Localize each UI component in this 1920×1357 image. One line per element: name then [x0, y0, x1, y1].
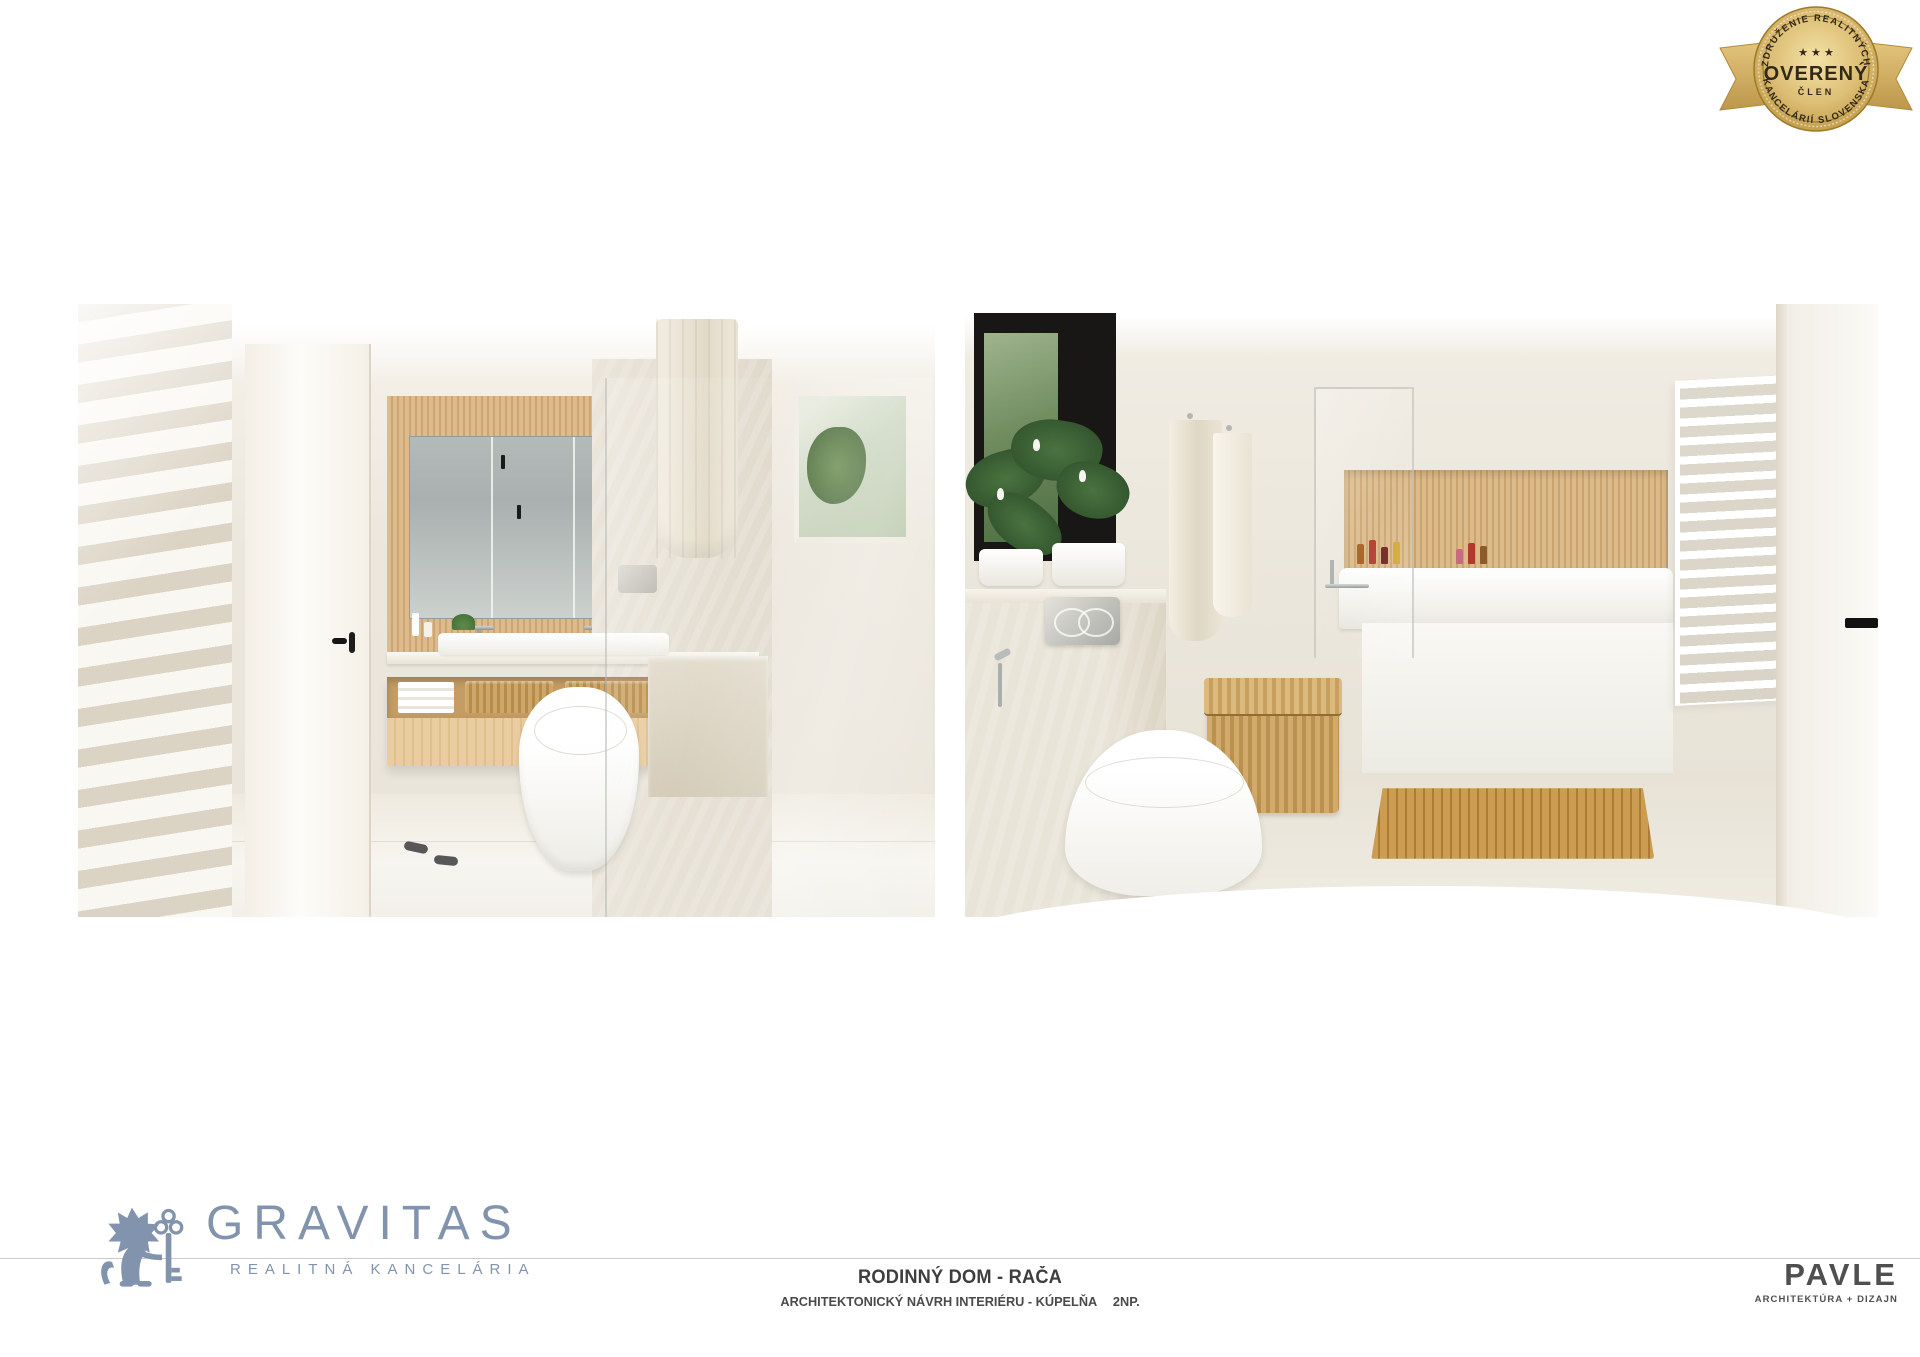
pavle-tagline: ARCHITEKTÚRA + DIZAJN: [1755, 1294, 1898, 1305]
soap-bottle: [424, 622, 432, 637]
white-door: [245, 344, 371, 917]
chrome-bidet-sprayer: [998, 663, 1002, 707]
peace-lily-flower: [997, 488, 1004, 500]
badge-stars: ★ ★ ★: [1798, 47, 1834, 59]
verified-member-badge: ZDRUŽENIE REALITNÝCH ★ ★ ★ OVERENÝ ČLEN …: [1714, 2, 1918, 136]
lion-foreleg: [140, 1251, 162, 1260]
soap-bottle: [412, 613, 419, 636]
mirror-seam: [491, 437, 493, 618]
counter-plant: [452, 614, 475, 630]
towel-radiator-striped-wall: [78, 304, 232, 917]
gravitas-lion-key-icon: [94, 1202, 198, 1296]
flush-button: [1078, 608, 1113, 637]
gravitas-wordmark: GRAVITAS: [206, 1199, 522, 1249]
footer-divider-line: [0, 1258, 1920, 1259]
key-tooth: [171, 1276, 181, 1281]
mirror-seam: [573, 437, 575, 618]
door-handle-rose: [349, 632, 355, 653]
door-handle: [332, 638, 347, 644]
wooden-bath-mat: [1371, 788, 1654, 858]
glass-bath-screen: [1314, 387, 1414, 659]
project-floor-label: 2NP.: [1113, 1294, 1140, 1309]
lion-paw: [138, 1281, 152, 1287]
toiletry-bottle: [1456, 549, 1463, 564]
project-subtitle-block: ARCHITEKTONICKÝ NÁVRH INTERIÉRU - KÚPELŇ…: [19, 1294, 1901, 1309]
chrome-flush-plate: [1045, 597, 1120, 645]
towel-hook: [1187, 413, 1193, 419]
key-stem: [166, 1233, 172, 1283]
glass-shower-partition: [605, 378, 933, 917]
render-bathroom-vanity-view: [78, 304, 935, 917]
key-bow: [170, 1222, 181, 1233]
toiletry-bottle: [1468, 543, 1475, 564]
folded-towels: [398, 682, 454, 712]
badge-wordmark: OVERENÝ: [1764, 61, 1869, 85]
badge-member-label: ČLEN: [1798, 86, 1835, 97]
ladder-towel-radiator: [1675, 375, 1785, 706]
gravitas-tagline: REALITNÁ KANCELÁRIA: [230, 1261, 536, 1278]
white-plant-pot: [1052, 543, 1125, 586]
pavle-wordmark: PAVLE: [1755, 1259, 1898, 1291]
peace-lily-flower: [1079, 470, 1086, 482]
lion-paw: [120, 1281, 134, 1287]
lion-tail: [101, 1261, 114, 1284]
door-handle: [1845, 618, 1878, 628]
ceiling-light-reflection: [501, 455, 505, 469]
pavle-logo-block: PAVLE ARCHITEKTÚRA + DIZAJN: [1755, 1259, 1898, 1305]
key-bow: [155, 1222, 166, 1233]
lion-body: [121, 1243, 146, 1284]
toiletry-bottle: [1480, 546, 1487, 564]
lion-head: [120, 1218, 146, 1244]
key-bow: [163, 1210, 174, 1221]
project-subtitle: ARCHITEKTONICKÝ NÁVRH INTERIÉRU - KÚPELŇ…: [780, 1294, 1097, 1309]
render-bathroom-bathtub-view: [965, 304, 1878, 917]
white-plant-pot: [979, 549, 1043, 586]
white-door: [1787, 304, 1878, 917]
presentation-page: ZDRUŽENIE REALITNÝCH ★ ★ ★ OVERENÝ ČLEN …: [0, 0, 1920, 1357]
key-tooth: [171, 1268, 179, 1273]
hanging-towel: [1213, 433, 1251, 617]
ceiling-light-reflection: [517, 505, 521, 519]
